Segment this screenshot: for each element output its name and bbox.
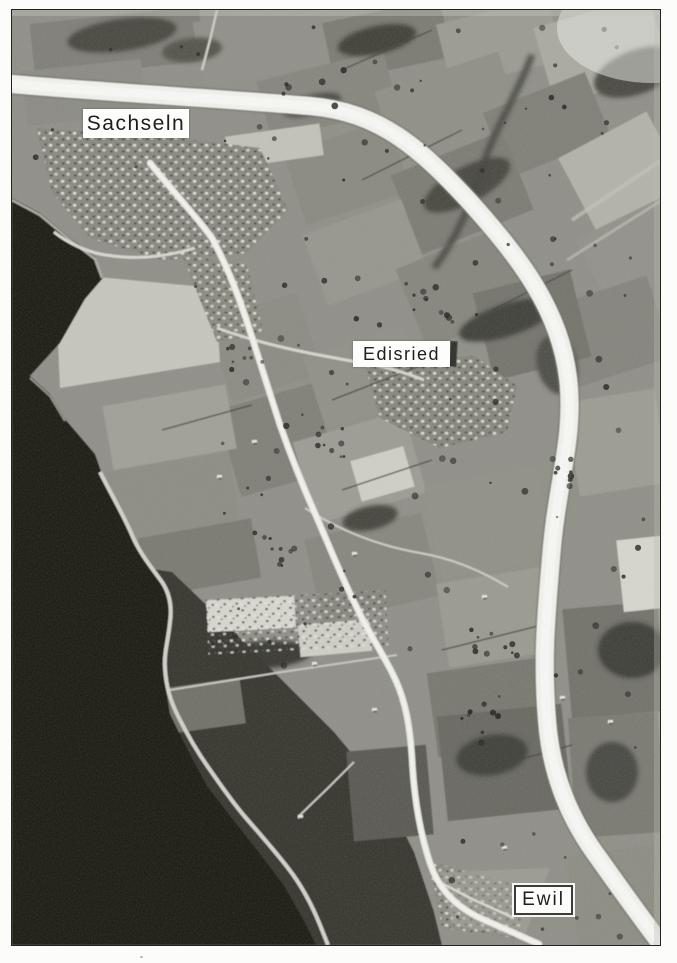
place-label-ewil: Ewil <box>514 885 573 915</box>
aerial-photo: Sachseln Edisried Ewil <box>12 10 660 945</box>
film-grain <box>12 10 660 945</box>
place-label-sachseln: Sachseln <box>83 109 189 138</box>
place-label-edisried: Edisried <box>353 341 450 367</box>
scanned-page: { "labels": { "sachseln": "Sachseln", "e… <box>0 0 677 963</box>
photo-scene <box>12 10 660 945</box>
scan-speck <box>140 956 143 958</box>
